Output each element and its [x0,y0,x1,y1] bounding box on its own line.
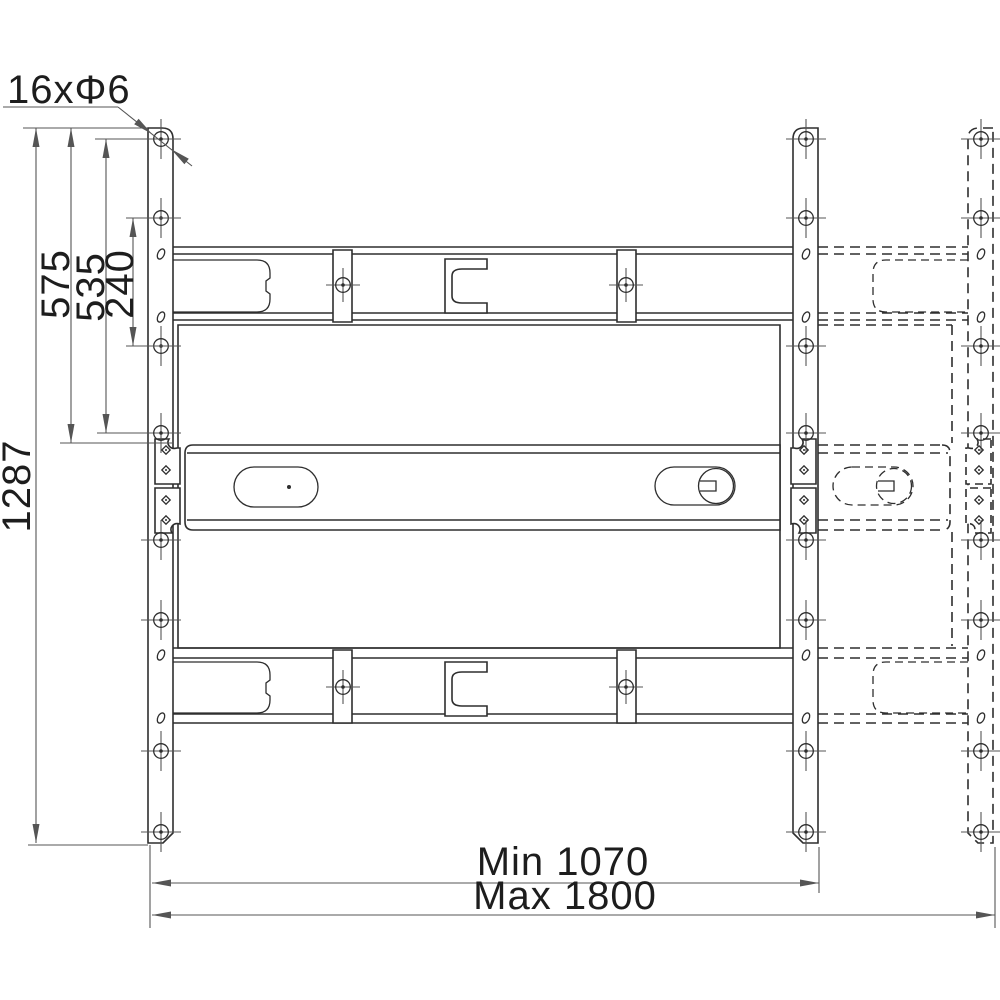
bolt-hole [961,119,1000,159]
bolt-hole [326,268,360,302]
center-plate [185,445,950,530]
lower-latch-bracket [445,662,487,716]
bolt-hole [141,520,181,560]
dim-label-240: 240 [98,249,142,319]
upper-crossbar [173,247,968,322]
bolt-hole [141,731,181,771]
left-wall-rail [148,128,180,843]
dim-label-max-1800: Max 1800 [473,874,657,918]
upper-latch-bracket [445,259,487,313]
upper-crossbar-cutout-extended [873,260,968,312]
lower-crossbar-cutout [173,662,270,713]
dim-overall-height: 1287 [0,128,40,843]
upper-crossbar-cutout [173,260,270,312]
dim-max-width: Max 1800 [152,874,995,919]
bolt-hole [786,600,826,640]
left-rail-clip-upper [155,439,180,484]
bolt-hole [609,268,643,302]
lower-crossbar [173,648,968,723]
bracket-technical-drawing: 16xΦ6 1287 575 535 [0,0,1000,1000]
technical-drawing-page: 16xΦ6 1287 575 535 [0,0,1000,1000]
bolt-hole [786,731,826,771]
bolt-hole [326,670,360,704]
bolt-hole [786,326,826,366]
bolt-hole [141,600,181,640]
plate-slot-extended [833,467,913,505]
bolt-hole [786,812,826,852]
bolt-hole [786,119,826,159]
bolt-hole [141,812,181,852]
leader-arrow-icon [134,119,152,134]
bolt-hole [786,198,826,238]
bolt-hole [961,600,1000,640]
bolt-hole [961,731,1000,771]
bolt-hole [786,520,826,560]
hole-spec-label: 16xΦ6 [7,68,131,112]
extended-wall-rail-dashed [966,128,993,843]
left-rail-clip-lower [155,488,180,533]
dim-label-1287: 1287 [0,440,39,533]
bolt-hole [961,520,1000,560]
dim-hole-pitch: 240 [98,218,142,346]
bolt-hole [961,198,1000,238]
bolt-hole [609,670,643,704]
bolt-hole [961,812,1000,852]
lower-crossbar-cutout-extended [873,662,968,713]
bolt-hole [961,326,1000,366]
right-wall-rail [791,128,818,843]
